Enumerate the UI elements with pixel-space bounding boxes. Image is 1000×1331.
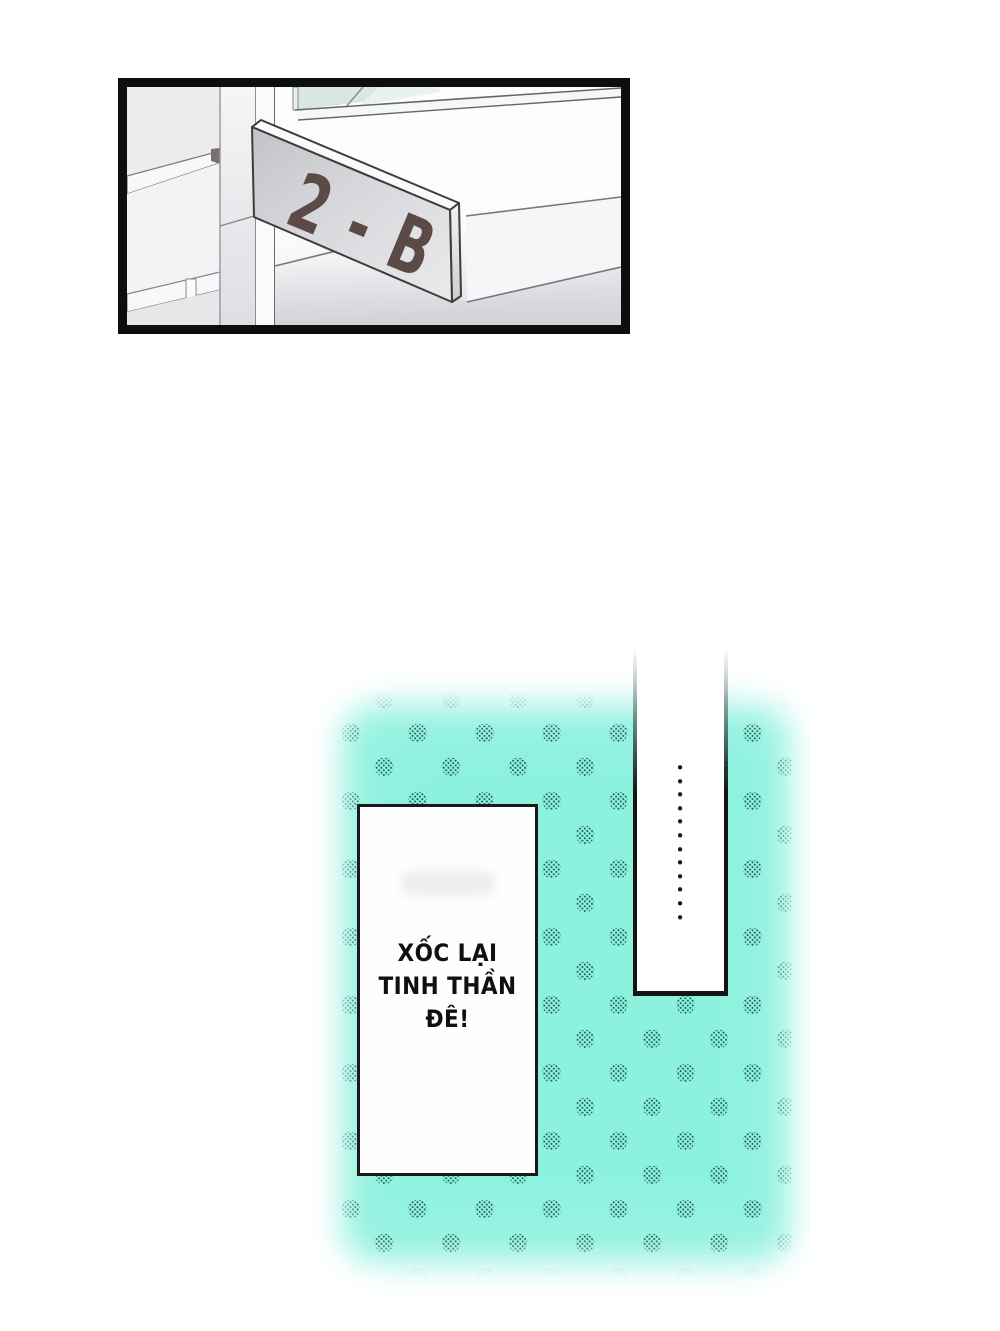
classroom-sign-artwork: 2-B xyxy=(127,87,621,325)
speech-box: XỐC LẠI TINH THẦN ĐÊ! xyxy=(357,804,538,1176)
pause-panel-border-right xyxy=(724,648,728,991)
classroom-sign-panel: 2-B xyxy=(118,78,630,334)
comic-page: 2-B • • • • • • • • • • • • xyxy=(0,0,1000,1331)
pause-panel-border-bottom xyxy=(633,991,728,996)
speech-text: XỐC LẠI TINH THẦN ĐÊ! xyxy=(358,937,537,1036)
left-wall xyxy=(127,87,220,325)
window-frame xyxy=(293,87,298,110)
vertical-ellipsis: • • • • • • • • • • • • xyxy=(655,762,705,925)
ghost-smudge xyxy=(402,871,494,895)
pause-panel-border-left xyxy=(633,648,637,991)
